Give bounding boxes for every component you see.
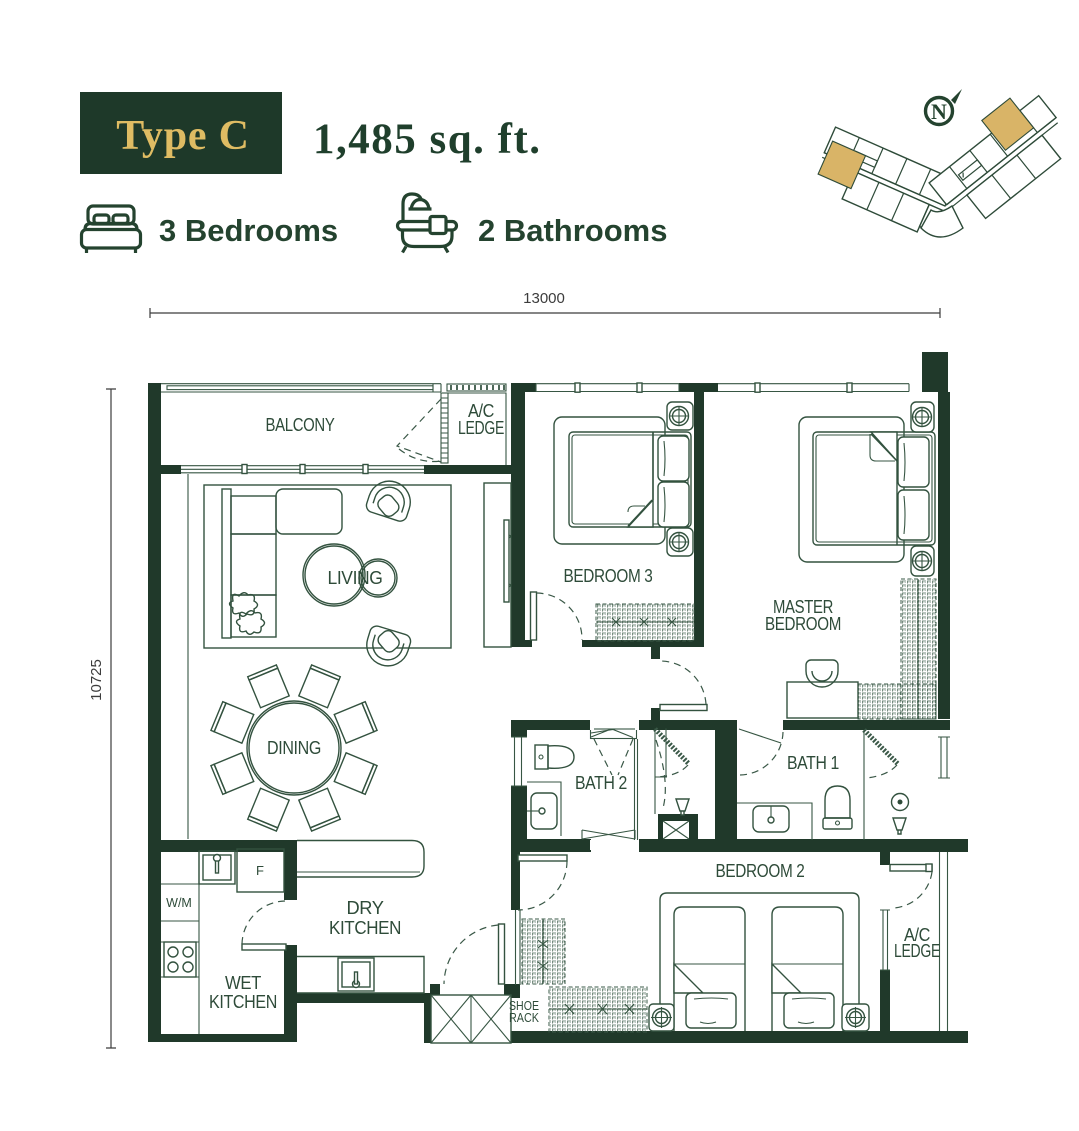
svg-text:BEDROOM: BEDROOM xyxy=(765,614,841,634)
svg-text:RACK: RACK xyxy=(509,1010,539,1025)
svg-text:DRY: DRY xyxy=(347,898,384,918)
svg-text:LEDGE: LEDGE xyxy=(458,418,504,438)
svg-text:W/M: W/M xyxy=(166,896,192,910)
svg-text:2 Bathrooms: 2 Bathrooms xyxy=(478,213,667,248)
svg-text:BATH 1: BATH 1 xyxy=(787,753,839,773)
svg-text:LIVING: LIVING xyxy=(328,568,383,588)
svg-text:N: N xyxy=(931,99,947,124)
svg-text:BALCONY: BALCONY xyxy=(266,415,335,435)
svg-text:LEDGE: LEDGE xyxy=(894,941,940,961)
svg-text:DINING: DINING xyxy=(267,738,321,758)
svg-text:BEDROOM 3: BEDROOM 3 xyxy=(564,566,653,586)
svg-text:F: F xyxy=(256,863,264,878)
svg-text:3 Bedrooms: 3 Bedrooms xyxy=(159,213,338,248)
svg-text:13000: 13000 xyxy=(523,290,565,307)
svg-text:BATH 2: BATH 2 xyxy=(575,773,627,793)
svg-text:KITCHEN: KITCHEN xyxy=(209,992,277,1012)
svg-text:WET: WET xyxy=(225,973,261,993)
svg-text:BEDROOM 2: BEDROOM 2 xyxy=(716,861,805,881)
svg-text:10725: 10725 xyxy=(88,659,105,701)
svg-text:KITCHEN: KITCHEN xyxy=(329,918,401,938)
svg-text:Type C: Type C xyxy=(116,113,250,159)
svg-text:1,485 sq. ft.: 1,485 sq. ft. xyxy=(313,116,542,163)
